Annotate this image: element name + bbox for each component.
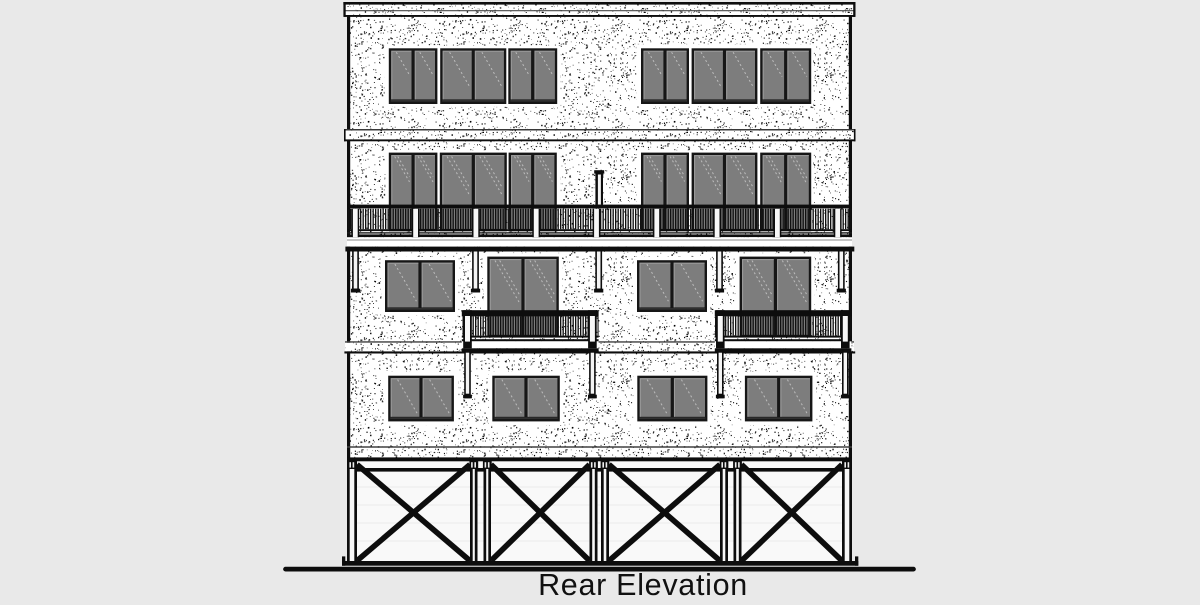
svg-text:Rear Elevation: Rear Elevation [538,568,748,600]
